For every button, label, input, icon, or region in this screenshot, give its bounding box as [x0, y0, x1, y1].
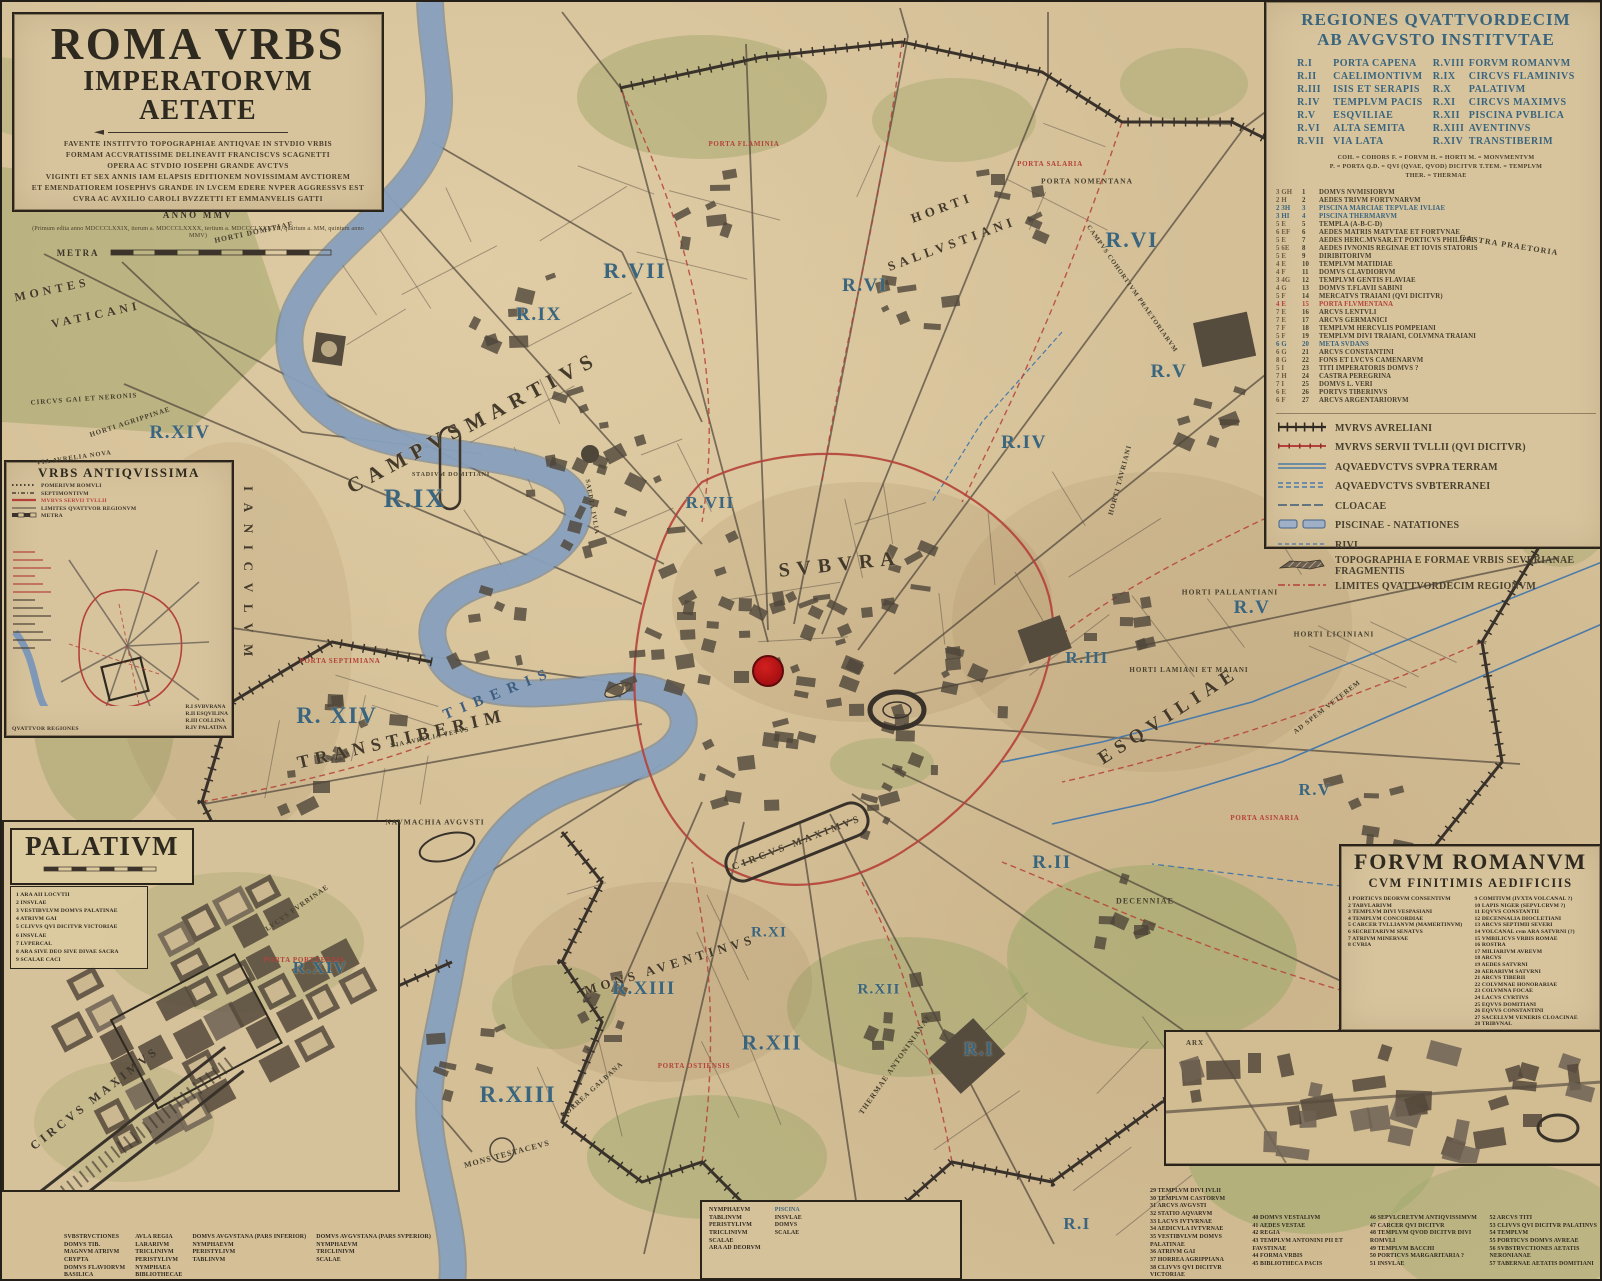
region-number: R.IX: [1433, 71, 1469, 82]
monument-grid-ref: 7 F: [1276, 325, 1302, 333]
quattuor-region-item: R.I SVBVRANA: [185, 704, 228, 711]
region-number: R.II: [1297, 71, 1333, 82]
monument-number: 15: [1302, 301, 1319, 309]
palatium-strip-column: SVBSTRVCTIONESDOMVS TIB.MAGNVM ATRIVMCRY…: [64, 1234, 125, 1280]
monument-row: 7 E17ARCVS GERMANICI: [1276, 317, 1596, 325]
forum-list-item: 8 CVRIA: [1348, 942, 1467, 949]
monument-name: DOMVS NVMISIORVM: [1319, 189, 1596, 197]
monument-number: 20: [1302, 341, 1319, 349]
monument-number: 10: [1302, 261, 1319, 269]
quattuor-region-item: R.IV PALATINA: [185, 725, 228, 732]
monuments-list: 3 GH1DOMVS NVMISIORVM2 H2AEDES TRIVM FOR…: [1276, 189, 1596, 405]
map-subtitle: IMPERATORVM AETATE: [24, 67, 372, 126]
monument-row: 6 G20META SVDANS: [1276, 341, 1596, 349]
monument-row: 7 F18TEMPLVM HERCVLIS POMPEIANI: [1276, 325, 1596, 333]
forum-strip-item: 52 ARCVS TITI: [1490, 1215, 1602, 1223]
forum-strip-item: 46 SEPVLCRETVM ANTIQVISSIMVM: [1370, 1215, 1481, 1223]
palatium-strip-item: PERISTYLIVM: [709, 1222, 761, 1230]
legend-symbol-label: CLOACAE: [1335, 502, 1596, 512]
monument-grid-ref: 2 H: [1276, 197, 1302, 205]
monument-row: 2 H2AEDES TRIVM FORTVNARVM: [1276, 197, 1596, 205]
region-row: R.IXCIRCVS FLAMINIVS: [1433, 71, 1575, 82]
monument-name: DOMVS CLAVDIORVM: [1319, 269, 1596, 277]
region-name: CAELIMONTIVM: [1333, 71, 1423, 82]
forum-list-item: 5 CARCER TVLLIANVM (MAMERTINVM): [1348, 922, 1467, 929]
monument-grid-ref: 6 G: [1276, 341, 1302, 349]
forum-list-item: 19 AEDES SATVRNI: [1475, 962, 1594, 969]
inset-legend-row: SEPTIMONTIVM: [11, 489, 227, 497]
monument-grid-ref: 6 G: [1276, 349, 1302, 357]
monument-row: 3 HI4PISCINA THERMARVM: [1276, 213, 1596, 221]
region-name: TEMPLVM PACIS: [1333, 97, 1423, 108]
palatium-strip-item: DOMVS AVGVSTANA (PARS INFERIOR): [192, 1234, 306, 1242]
monument-number: 27: [1302, 397, 1319, 405]
palatium-strip-item: CRYPTA: [64, 1257, 125, 1265]
region-name: PISCINA PVBLICA: [1469, 110, 1575, 121]
rivi-symbol: [1276, 537, 1330, 555]
forum-list-item: 22 COLVMNAE HONORARIAE: [1475, 982, 1594, 989]
region-name: ESQVILIAE: [1333, 110, 1423, 121]
region-row: R.XIVTRANSTIBERIM: [1433, 136, 1575, 147]
region-name: AVENTINVS: [1469, 123, 1575, 134]
forum-strip-item: 31 ARCVS AVGVSTI: [1150, 1203, 1243, 1211]
monument-row: 4 E15PORTA FLVMENTANA: [1276, 301, 1596, 309]
forum-strip-item: 54 TEMPLVM: [1490, 1230, 1602, 1238]
palatium-strip-column: PISCINAINSVLAEDOMVSSCALAE: [775, 1207, 802, 1273]
region-name: ALTA SEMITA: [1333, 123, 1423, 134]
forum-strip-item: 40 DOMVS VESTALIVM: [1252, 1215, 1361, 1223]
monument-row: 5 F14MERCATVS TRAIANI (QVI DICITVR): [1276, 293, 1596, 301]
forum-strip-item: 53 CLIVVS QVI DICITVR PALATINVS: [1490, 1223, 1602, 1231]
monument-row: 4 F11DOMVS CLAVDIORVM: [1276, 269, 1596, 277]
forum-strip-item: 32 STATIO AQVARVM: [1150, 1211, 1243, 1219]
legend-title-line2: AB AVGVSTO INSTITVTAE: [1276, 30, 1596, 50]
monument-name: TEMPLVM HERCVLIS POMPEIANI: [1319, 325, 1596, 333]
legend-symbol-row: RIVI: [1276, 537, 1596, 555]
cloacae-symbol: [1276, 498, 1330, 516]
forum-list-item: 14 VOLCANAL cvm ARA SATVRNI (?): [1475, 929, 1594, 936]
monument-number: 7: [1302, 237, 1319, 245]
palatium-legend-strip: SVBSTRVCTIONESDOMVS TIB.MAGNVM ATRIVMCRY…: [64, 1234, 436, 1280]
regions-col: R.VIIIFORVM ROMANVMR.IXCIRCVS FLAMINIVSR…: [1433, 58, 1575, 147]
forum-strip-item: 30 TEMPLVM CASTORVM: [1150, 1196, 1243, 1204]
forum-strip-column: 46 SEPVLCRETVM ANTIQVISSIMVM47 CARCER QV…: [1370, 1188, 1481, 1280]
monument-name: TEMPLVM GENTIS FLAVIAE: [1319, 277, 1596, 285]
inset-title: VRBS ANTIQVISSIMA: [11, 465, 227, 481]
monument-grid-ref: 7 E: [1276, 309, 1302, 317]
palatium-strip-item: SCALAE: [316, 1257, 431, 1265]
abbreviation-line: P. = PORTA Q.D. = QVI (QVAE, QVOD) DICIT…: [1276, 163, 1596, 172]
palatium-strip-item: PISCINA: [775, 1207, 802, 1215]
editions-line: (Primum edita anno MDCCCLXXIX, iterum a.…: [24, 225, 372, 239]
region-number: R.VIII: [1433, 58, 1469, 69]
palatium-strip-item: DOMVS TIB.: [64, 1242, 125, 1250]
region-name: PALATIVM: [1469, 84, 1575, 95]
region-row: R.VIIVIA LATA: [1297, 136, 1423, 147]
monument-number: 24: [1302, 373, 1319, 381]
monument-name: META SVDANS: [1319, 341, 1596, 349]
monument-name: TEMPLA (A-B-C-D): [1319, 221, 1596, 229]
title-divider: [108, 132, 288, 133]
forum-strip-item: 44 FORMA VRBIS: [1252, 1253, 1361, 1261]
legend-symbol-row: MVRVS SERVII TVLLII (QVI DICITVR): [1276, 439, 1596, 457]
abbreviations: COH. = COHORS F. = FORVM H. = HORTI M. =…: [1276, 154, 1596, 181]
forum-strip-item: 48 TEMPLVM QVOD DICITVR DIVI ROMVLI: [1370, 1230, 1481, 1245]
monument-grid-ref: 4 F: [1276, 269, 1302, 277]
monument-row: 5 E9DIRIBITORIVM: [1276, 253, 1596, 261]
legend-symbol-row: MVRVS AVRELIANI: [1276, 420, 1596, 438]
legend-symbol-row: AQVAEDVCTVS SVPRA TERRAM: [1276, 459, 1596, 477]
palatium-strip-column: DOMVS AVGVSTANA (PARS SVPERIOR)NYMPHAEVM…: [316, 1234, 431, 1280]
forum-romanum-title-box: FORVM ROMANVM CVM FINITIMIS AEDIFICIIS 1…: [1339, 844, 1602, 1032]
monument-number: 22: [1302, 357, 1319, 365]
map-sheet: R.IXR.IXR.VIIR.VIIR.VIR.VIR.VR.VR.VR.IVR…: [0, 0, 1602, 1281]
region-row: R.IICAELIMONTIVM: [1297, 71, 1423, 82]
region-number: R.XIII: [1433, 123, 1469, 134]
region-row: R.XIIIAVENTINVS: [1433, 123, 1575, 134]
region-number: R.III: [1297, 84, 1333, 95]
monument-grid-ref: 5 I: [1276, 365, 1302, 373]
forum-list-item: 16 ROSTRA: [1475, 942, 1594, 949]
monument-row: 2 3H3PISCINA MARCIAE TEPVLAE IVLIAE: [1276, 205, 1596, 213]
palatium-strip-item: NYMPHAEVM: [192, 1242, 306, 1250]
forum-strip-item: 49 TEMPLVM BACCHI: [1370, 1246, 1481, 1254]
forum-list-item: 6 SECRETARIVM SENATVS: [1348, 929, 1467, 936]
region-row: R.IIIISIS ET SERAPIS: [1297, 84, 1423, 95]
regiones-legend-panel: REGIONES QVATTVORDECIM AB AVGVSTO INSTIT…: [1264, 2, 1602, 549]
monument-row: 7 H24CASTRA PEREGRINA: [1276, 373, 1596, 381]
legend-symbol-label: LIMITES QVATTVORDECIM REGIONVM: [1335, 582, 1596, 592]
legend-title-line1: REGIONES QVATTVORDECIM: [1276, 10, 1596, 30]
scale-bar: [107, 246, 339, 259]
monument-number: 14: [1302, 293, 1319, 301]
region-name: PORTA CAPENA: [1333, 58, 1423, 69]
forum-list-item: 15 VMBILICVS VRBIS ROMAE: [1475, 936, 1594, 943]
palatium-strip-item: SVBSTRVCTIONES: [64, 1234, 125, 1242]
region-name: TRANSTIBERIM: [1469, 136, 1575, 147]
symbols-legend: MVRVS AVRELIANIMVRVS SERVII TVLLII (QVI …: [1276, 413, 1596, 596]
limites-symbol: [1276, 578, 1330, 596]
monument-grid-ref: 6 F: [1276, 397, 1302, 405]
quattuor-region-item: R.II ESQVILINA: [185, 711, 228, 718]
palatium-strip-column: NYMPHAEVMTABLINVMPERISTYLIVMTRICLINIVMSC…: [709, 1207, 761, 1273]
monument-row: 6 F27ARCVS ARGENTARIORVM: [1276, 397, 1596, 405]
monument-name: CASTRA PEREGRINA: [1319, 373, 1596, 381]
monument-grid-ref: 3 4G: [1276, 277, 1302, 285]
monument-number: 16: [1302, 309, 1319, 317]
forum-strip-item: 47 CARCER QVI DICITVR: [1370, 1223, 1481, 1231]
forum-strip-item: 41 AEDES VESTAE: [1252, 1223, 1361, 1231]
legend-symbol-label: TOPOGRAPHIA E FORMAE VRBIS SEVERIANAE FR…: [1335, 556, 1596, 576]
monument-grid-ref: 4 E: [1276, 261, 1302, 269]
palatium-strip-item: SCALAE: [709, 1238, 761, 1246]
forum-strip-item: 35 VESTIBVLVM DOMVS PALATINAE: [1150, 1234, 1243, 1249]
monument-row: 3 4G12TEMPLVM GENTIS FLAVIAE: [1276, 277, 1596, 285]
forum-strip-column: 29 TEMPLVM DIVI IVLII30 TEMPLVM CASTORVM…: [1150, 1188, 1243, 1280]
palatium-strip-item: ARA AD DEORVM: [709, 1245, 761, 1253]
location-marker-dot[interactable]: [752, 655, 784, 687]
monument-number: 9: [1302, 253, 1319, 261]
legend-symbol-row: TOPOGRAPHIA E FORMAE VRBIS SEVERIANAE FR…: [1276, 556, 1596, 576]
monument-number: 8: [1302, 245, 1319, 253]
monument-name: TEMPLVM DIVI TRAIANI, COLVMNA TRAIANI: [1319, 333, 1596, 341]
forum-strip-item: 55 PORTICVS DOMVS AVREAE: [1490, 1238, 1602, 1246]
forum-numbered-list: 1 PORTICVS DEORVM CONSENTIVM2 TABVLARIVM…: [1348, 896, 1593, 1028]
region-row: R.VESQVILIAE: [1297, 110, 1423, 121]
region-number: R.VI: [1297, 123, 1333, 134]
dedication-line: OPERA AC STVDIO IOSEPHI GRANDE AVCTVS: [24, 160, 372, 171]
frag-symbol: [1276, 558, 1330, 576]
forum-strip-item: 36 ATRIVM GAI: [1150, 1249, 1243, 1257]
monument-row: 6 EF6AEDES MATRIS MATVTAE ET FORTVNAE: [1276, 229, 1596, 237]
monument-row: 4 E10TEMPLVM MATIDIAE: [1276, 261, 1596, 269]
palatium-strip-item: TRICLINIVM: [316, 1249, 431, 1257]
palatium-title: PALATIVM: [16, 833, 188, 860]
region-number: R.X: [1433, 84, 1469, 95]
monument-name: PORTA FLVMENTANA: [1319, 301, 1596, 309]
palatium-list-item: 8 ARA SIVE DEO SIVE DIVAE SACRA: [16, 948, 142, 956]
forum-list-item: 2 TABVLARIVM: [1348, 903, 1467, 910]
forum-list-item: 18 ARCVS: [1475, 955, 1594, 962]
quattuor-regiones-list: R.I SVBVRANAR.II ESQVILINAR.III COLLINAR…: [185, 704, 228, 732]
monument-name: PISCINA THERMARVM: [1319, 213, 1596, 221]
monument-name: PORTVS TIBERINVS: [1319, 389, 1596, 397]
title-cartouche: ROMA VRBS IMPERATORVM AETATE FAVENTE INS…: [12, 12, 384, 212]
inset-legend: POMERIVM ROMVLISEPTIMONTIVMMVRVS SERVII …: [11, 481, 227, 519]
quattuor-regiones-label: QVATTVOR REGIONES: [12, 726, 79, 732]
monument-name: ARCVS CONSTANTINI: [1319, 349, 1596, 357]
forum-strip-item: 29 TEMPLVM DIVI IVLII: [1150, 1188, 1243, 1196]
forum-strip-item: 37 HORREA AGRIPPIANA: [1150, 1257, 1243, 1265]
region-number: R.I: [1297, 58, 1333, 69]
monument-number: 2: [1302, 197, 1319, 205]
monument-grid-ref: 5 F: [1276, 293, 1302, 301]
scale-label: METRA: [57, 248, 100, 258]
palatium-strip-column: DOMVS AVGVSTANA (PARS INFERIOR)NYMPHAEVM…: [192, 1234, 306, 1280]
monument-grid-ref: 5 6E: [1276, 245, 1302, 253]
monument-row: 5 I23TITI IMPERATORIS DOMVS ?: [1276, 365, 1596, 373]
forum-strip-item: 56 SVBSTRVCTIONES AETATIS NERONIANAE: [1490, 1246, 1602, 1261]
dedication-line: FAVENTE INSTITVTO TOPOGRAPHIAE ANTIQVAE …: [24, 138, 372, 149]
piscinae-symbol: [1276, 517, 1330, 535]
monument-grid-ref: 6 E: [1276, 389, 1302, 397]
monument-grid-ref: 4 G: [1276, 285, 1302, 293]
palatium-strip-item: AVLA REGIA: [135, 1234, 182, 1242]
palatium-list-item: 5 CLIVVS QVI DICITVR VICTORIAE: [16, 923, 142, 931]
legend-symbol-row: LIMITES QVATTVORDECIM REGIONVM: [1276, 578, 1596, 596]
monument-number: 17: [1302, 317, 1319, 325]
palatium-strip-item: TRICLINIVM: [709, 1230, 761, 1238]
region-row: R.IVTEMPLVM PACIS: [1297, 97, 1423, 108]
monument-number: 1: [1302, 189, 1319, 197]
inset-scale-bar: [11, 511, 37, 521]
monument-grid-ref: 3 HI: [1276, 213, 1302, 221]
monument-row: 5 6E8AEDES IVNONIS REGINAE ET IOVIS STAT…: [1276, 245, 1596, 253]
palatium-numbered-list: 1 ARA AII LOCVTII2 INSVLAE3 VESTIBVLVM D…: [10, 886, 148, 969]
monument-name: AEDES TRIVM FORTVNARVM: [1319, 197, 1596, 205]
inset-legend-row: LIMITES QVATTVOR REGIONVM: [11, 504, 227, 512]
palatium-strip-item: PERISTYLIVM: [192, 1249, 306, 1257]
forum-list-item: 1 PORTICVS DEORVM CONSENTIVM: [1348, 896, 1467, 903]
monument-grid-ref: 5 F: [1276, 333, 1302, 341]
region-number: R.IV: [1297, 97, 1333, 108]
monument-row: 5 E7AEDES HERC.MVSAR.ET PORTICVS PHILIPP…: [1276, 237, 1596, 245]
region-name: CIRCVS MAXIMVS: [1469, 97, 1575, 108]
forum-strip-item: 38 CLIVVS QVI DICITVR VICTORIAE: [1150, 1265, 1243, 1280]
monument-row: 3 GH1DOMVS NVMISIORVM: [1276, 189, 1596, 197]
legend-symbol-label: MVRVS SERVII TVLLII (QVI DICITVR): [1335, 443, 1596, 453]
monument-name: AEDES IVNONIS REGINAE ET IOVIS STATORIS: [1319, 245, 1596, 253]
forum-list-item: 24 LACVS CVRTIVS: [1475, 995, 1594, 1002]
inset-legend-row: POMERIVM ROMVLI: [11, 481, 227, 489]
monument-row: 4 G13DOMVS T.FLAVII SABINI: [1276, 285, 1596, 293]
forum-list-item: 11 EQVVS CONSTANTII: [1475, 909, 1594, 916]
region-row: R.XIIPISCINA PVBLICA: [1433, 110, 1575, 121]
palatium-inset: PALATIVM 1 ARA AII LOCVTII2 INSVLAE3 VES…: [2, 820, 400, 1192]
region-row: R.VIIIFORVM ROMANVM: [1433, 58, 1575, 69]
palatium-strip-item: NYMPHAEVM: [316, 1242, 431, 1250]
palatium-strip-item: DOMVS: [775, 1222, 802, 1230]
monument-number: 12: [1302, 277, 1319, 285]
scale-bar-row: METRA: [24, 246, 372, 259]
forum-strip-item: 42 REGIA: [1252, 1230, 1361, 1238]
forum-list-col: 1 PORTICVS DEORVM CONSENTIVM2 TABVLARIVM…: [1348, 896, 1467, 1028]
monument-name: AEDES HERC.MVSAR.ET PORTICVS PHILIPPI: [1319, 237, 1596, 245]
anno-line: ANNO MMV: [24, 210, 372, 220]
monument-name: AEDES MATRIS MATVTAE ET FORTVNAE: [1319, 229, 1596, 237]
region-row: R.XPALATIVM: [1433, 84, 1575, 95]
map-title: ROMA VRBS: [24, 22, 372, 67]
region-number: R.V: [1297, 110, 1333, 121]
monument-name: DOMVS T.FLAVII SABINI: [1319, 285, 1596, 293]
palatium-list-item: 4 ATRIVM GAI: [16, 915, 142, 923]
monument-number: 21: [1302, 349, 1319, 357]
monument-name: TEMPLVM MATIDIAE: [1319, 261, 1596, 269]
palatium-strip-item: BASILICA: [64, 1272, 125, 1280]
monument-number: 26: [1302, 389, 1319, 397]
inset-legend-label: MVRVS SERVII TVLLII: [41, 498, 227, 504]
monument-name: FONS ET LVCVS CAMENARVM: [1319, 357, 1596, 365]
forum-list-item: 7 ATRIVM MINERVAE: [1348, 936, 1467, 943]
inset-legend-label: LIMITES QVATTVOR REGIONVM: [41, 506, 227, 512]
monument-grid-ref: 2 3H: [1276, 205, 1302, 213]
palatium-strip-item: NYMPHAEVM: [709, 1207, 761, 1215]
forum-list-item: 20 AERARIVM SATVRNI: [1475, 969, 1594, 976]
legend-symbol-label: MVRVS AVRELIANI: [1335, 424, 1596, 434]
monument-row: 5 F19TEMPLVM DIVI TRAIANI, COLVMNA TRAIA…: [1276, 333, 1596, 341]
palatium-legend-box: NYMPHAEVMTABLINVMPERISTYLIVMTRICLINIVMSC…: [700, 1200, 962, 1280]
abbreviation-line: COH. = COHORS F. = FORVM H. = HORTI M. =…: [1276, 154, 1596, 163]
inset-legend-label: POMERIVM ROMVLI: [41, 483, 227, 489]
regions-col: R.IPORTA CAPENAR.IICAELIMONTIVMR.IIIISIS…: [1297, 58, 1423, 147]
forum-list-item: 27 SACELLVM VENERIS CLOACINAE: [1475, 1015, 1594, 1022]
palatium-scale-bar: [42, 865, 162, 873]
forum-strip-column: 52 ARCVS TITI53 CLIVVS QVI DICITVR PALAT…: [1490, 1188, 1602, 1280]
forum-list-item: 12 DECENNALIA DIOCLETIANI: [1475, 916, 1594, 923]
forum-list-item: 28 TRIBVNAL: [1475, 1021, 1594, 1028]
palatium-strip-column: AVLA REGIALARARIVMTRICLINIVMPERISTYLIVMN…: [135, 1234, 182, 1280]
wall-black-symbol: [1276, 420, 1330, 438]
forum-list-item: 10 LAPIS NIGER (SEPVLCRVM ?): [1475, 903, 1594, 910]
dedication-line: CVRA AC AVXILIO CAROLI BVZZETTI ET EMMAN…: [24, 193, 372, 204]
monument-grid-ref: 3 GH: [1276, 189, 1302, 197]
palatium-list-item: 9 SCALAE CACI: [16, 956, 142, 964]
region-row: R.IPORTA CAPENA: [1297, 58, 1423, 69]
forum-strip-item: 43 TEMPLVM ANTONINI PII ET FAVSTINAE: [1252, 1238, 1361, 1253]
palatium-list-item: 3 VESTIBVLVM DOMVS PALATINAE: [16, 907, 142, 915]
monument-number: 13: [1302, 285, 1319, 293]
urbs-antiquissima-inset: VRBS ANTIQVISSIMA POMERIVM ROMVLISEPTIMO…: [4, 460, 234, 738]
monument-number: 11: [1302, 269, 1319, 277]
monument-number: 4: [1302, 213, 1319, 221]
dedication-text: FAVENTE INSTITVTO TOPOGRAPHIAE ANTIQVAE …: [24, 138, 372, 205]
forum-list-item: 3 TEMPLVM DIVI VESPASIANI: [1348, 909, 1467, 916]
forum-list-item: 17 MILIARIVM AVREVM: [1475, 949, 1594, 956]
forum-list-col: 9 COMITIVM (IVXTA VOLCANAL ?)10 LAPIS NI…: [1475, 896, 1594, 1028]
monument-name: ARCVS ARGENTARIORVM: [1319, 397, 1596, 405]
monument-name: DIRIBITORIVM: [1319, 253, 1596, 261]
monument-grid-ref: 5 E: [1276, 221, 1302, 229]
monument-row: 7 E16ARCVS LENTVLI: [1276, 309, 1596, 317]
region-name: FORVM ROMANVM: [1469, 58, 1575, 69]
inset-footer: QVATTVOR REGIONES R.I SVBVRANAR.II ESQVI…: [12, 704, 228, 732]
monument-number: 5: [1302, 221, 1319, 229]
quattuor-region-item: R.III COLLINA: [185, 718, 228, 725]
monument-row: 5 E5TEMPLA (A-B-C-D): [1276, 221, 1596, 229]
forum-list-item: 13 ARCVS SEPTIMII SEVERI: [1475, 922, 1594, 929]
inset-minimap: [9, 524, 231, 706]
palatium-list-item: 1 ARA AII LOCVTII: [16, 891, 142, 899]
monument-number: 19: [1302, 333, 1319, 341]
region-name: VIA LATA: [1333, 136, 1423, 147]
monument-number: 3: [1302, 205, 1319, 213]
palatium-title-box: PALATIVM: [10, 828, 194, 885]
aq-solid-symbol: [1276, 459, 1330, 477]
inset-scale-label: METRA: [41, 513, 227, 519]
forum-legend-strip: 29 TEMPLVM DIVI IVLII30 TEMPLVM CASTORVM…: [1150, 1188, 1602, 1280]
inset-legend-row: MVRVS SERVII TVLLII: [11, 496, 227, 504]
region-number: R.XIV: [1433, 136, 1469, 147]
palatium-list-item: 6 INSVLAE: [16, 932, 142, 940]
forum-strip-item: 45 BIBLIOTHECA PACIS: [1252, 1261, 1361, 1269]
monument-number: 6: [1302, 229, 1319, 237]
monument-row: 8 G22FONS ET LVCVS CAMENARVM: [1276, 357, 1596, 365]
legend-symbol-row: PISCINAE - NATATIONES: [1276, 517, 1596, 535]
monument-number: 23: [1302, 365, 1319, 373]
dedication-line: FORMAM ACCVRATISSIME DELINEAVIT FRANCISC…: [24, 149, 372, 160]
palatium-strip-item: BIBLIOTHECAE: [135, 1272, 182, 1280]
forum-strip-item: 33 LACVS IVTVRNAE: [1150, 1219, 1243, 1227]
monument-row: 6 E26PORTVS TIBERINVS: [1276, 389, 1596, 397]
monument-name: DOMVS L. VERI: [1319, 381, 1596, 389]
forum-subtitle: CVM FINITIMIS AEDIFICIIS: [1348, 876, 1593, 891]
monument-name: MERCATVS TRAIANI (QVI DICITVR): [1319, 293, 1596, 301]
forum-strip-item: 34 AEDICVLA IVTVRNAE: [1150, 1226, 1243, 1234]
palatium-strip-item: SCALAE: [775, 1230, 802, 1238]
palatium-strip-item: MAGNVM ATRIVM: [64, 1249, 125, 1257]
dedication-line: ET EMENDATIOREM IOSEPHVS GRANDE IN LVCEM…: [24, 182, 372, 193]
legend-symbol-label: RIVI: [1335, 541, 1596, 551]
palatium-strip-item: DOMVS FLAVIORVM: [64, 1265, 125, 1273]
monument-grid-ref: 6 EF: [1276, 229, 1302, 237]
abbreviation-line: THER. = THERMAE: [1276, 172, 1596, 181]
monument-grid-ref: 4 E: [1276, 301, 1302, 309]
legend-symbol-label: AQVAEDVCTVS SVPRA TERRAM: [1335, 463, 1596, 473]
monument-row: 7 I25DOMVS L. VERI: [1276, 381, 1596, 389]
monument-name: ARCVS GERMANICI: [1319, 317, 1596, 325]
forum-strip-item: 57 TABERNAE AETATIS DOMITIANI: [1490, 1261, 1602, 1269]
monument-name: PISCINA MARCIAE TEPVLAE IVLIAE: [1319, 205, 1596, 213]
